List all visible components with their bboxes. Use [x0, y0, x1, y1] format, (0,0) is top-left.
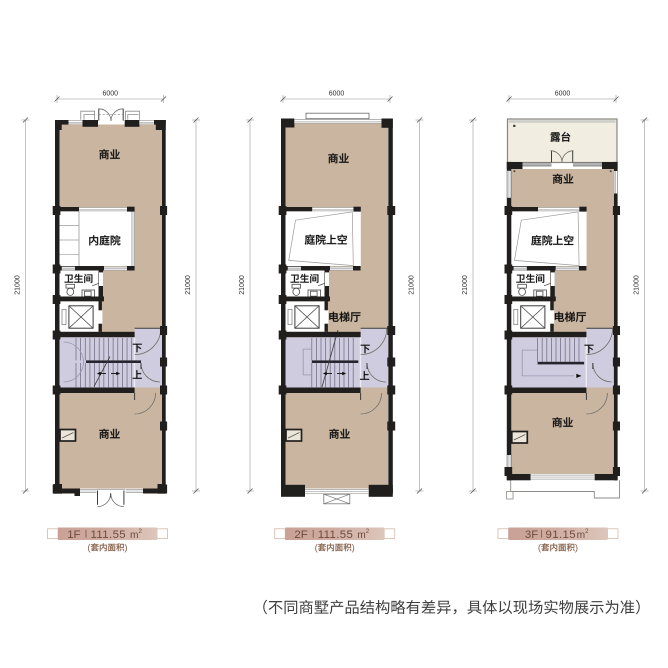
- svg-text:1F: 1F: [67, 529, 80, 541]
- svg-text:21000: 21000: [409, 275, 416, 295]
- svg-text:21000: 21000: [15, 275, 22, 295]
- svg-text:21000: 21000: [239, 275, 246, 295]
- svg-text:m: m: [357, 530, 366, 541]
- svg-text:3F: 3F: [525, 529, 538, 541]
- svg-text:6000: 6000: [102, 91, 118, 98]
- svg-text:21000: 21000: [462, 275, 469, 295]
- svg-text:91.15: 91.15: [546, 529, 577, 541]
- svg-text:2F: 2F: [294, 529, 307, 541]
- svg-text:21000: 21000: [185, 275, 192, 295]
- svg-text:6000: 6000: [329, 91, 345, 98]
- svg-text:): ): [124, 543, 127, 554]
- svg-text:m: m: [130, 530, 139, 541]
- svg-text:): ): [352, 543, 355, 554]
- svg-text:111.55: 111.55: [91, 529, 127, 541]
- svg-text:6000: 6000: [555, 91, 571, 98]
- svg-text:): ): [575, 543, 578, 554]
- svg-text:21000: 21000: [634, 275, 641, 295]
- svg-text:111.55: 111.55: [318, 529, 354, 541]
- svg-text:m: m: [577, 530, 586, 541]
